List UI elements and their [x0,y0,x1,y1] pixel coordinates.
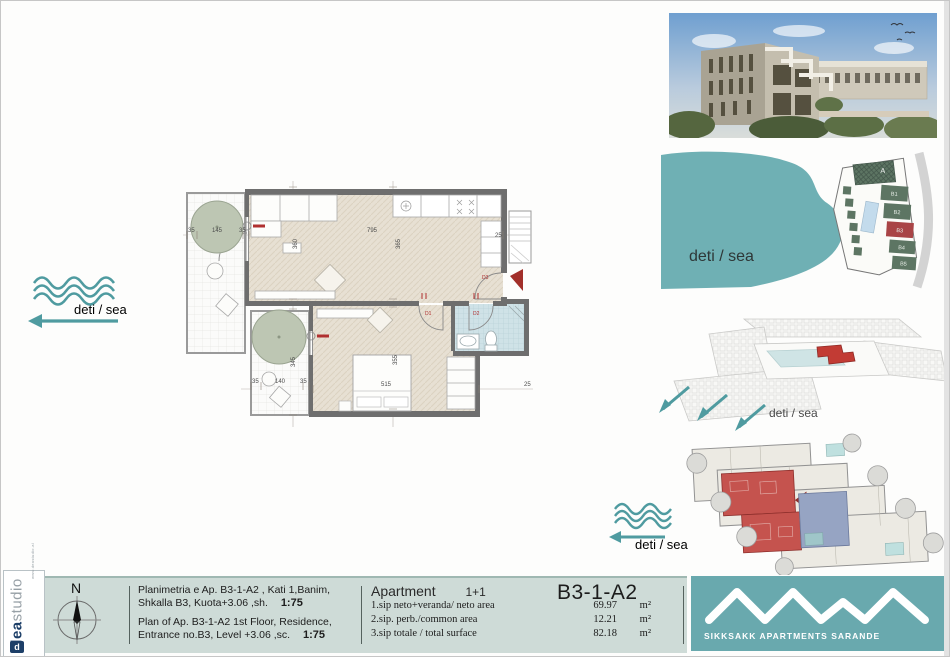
drawing-titles: Planimetria e Ap. B3-1-A2 , Kati 1,Banim… [138,584,356,648]
scale-sq: 1:75 [281,597,303,609]
dim-veranda2-height: 345 [291,356,297,367]
dim-balc1-c: 35 [239,228,246,234]
table-row: 3.sip totale / total surface 82.18 m² [371,627,677,641]
bath-tile-3 [885,542,904,555]
block-b3-label: B3 [896,228,903,234]
site-plan: A B1 B2 B3 B4 B5 [823,151,949,289]
arrow-left-icon [28,314,42,328]
nightstand [339,401,351,411]
door-tag-d1: D1 [425,311,432,317]
deastudio-logo: deastudio www.deastudio.al d [3,570,45,657]
bath-tile-2 [826,443,845,456]
company-name: SIKKSAKK APARTMENTS SARANDE [704,631,880,641]
dim-balc2-c: 35 [300,379,307,385]
block-b2-label: B2 [893,210,900,216]
dim-living-width: 795 [367,228,378,234]
row-label: 1.sip neto+veranda/ neto area [371,599,567,613]
row-label: 2.sip. perb./common area [371,613,567,627]
arrow-left-icon-2 [609,531,621,543]
row-unit: m² [617,627,651,641]
row-unit: m² [617,613,651,627]
building-wing [809,61,927,99]
sea-label-axon: deti / sea [769,406,818,420]
dim-balc1-a: 35 [188,228,195,234]
sea-label-left: deti / sea [74,302,128,317]
sea-shape [661,152,841,289]
dresser [317,309,373,318]
drawing-sheet: D3 D1 D2 [0,0,950,657]
dim-kitchen-side: 25 [495,233,502,239]
unit-code: B3-1-A2 [557,581,638,605]
apartment-label: Apartment [371,583,436,599]
title-en-line1: Plan of Ap. B3-1-A2 1st Floor, Residence… [138,616,332,628]
bath-tile-1 [805,533,824,546]
sea-direction-right: deti / sea [605,499,705,555]
company-logo-block: SIKKSAKK APARTMENTS SARANDE [691,576,947,651]
studio-text: studio [9,578,26,621]
row-value: 82.18 [567,627,617,641]
dim-bedroom-width: 515 [381,382,392,388]
road [917,153,929,287]
deastudio-wordmark: deastudio [9,578,26,648]
table-row: 2.sip. perb./common area 12.21 m² [371,613,677,627]
tv-cabinet [255,291,335,299]
dim-balc2-a: 35 [252,379,259,385]
scale-en: 1:75 [303,629,325,641]
dim-balc2-b: 140 [275,379,286,385]
title-block: N Planimetria e Ap. B3-1-A2 , Kati 1,Ban… [41,576,687,653]
door-tag-d2: D2 [473,311,480,317]
area-table: Apartment 1+1 B3-1-A2 1.sip neto+veranda… [371,583,677,642]
deastudio-icon: d [10,641,24,653]
key-floor-plan [683,429,949,575]
title-sq-line1: Planimetria e Ap. B3-1-A2 , Kati 1,Banim… [138,584,330,596]
row-label: 3.sip totale / total surface [371,627,567,641]
dim-balc1-b: 145 [212,228,223,234]
dim-bedroom-height: 355 [393,354,399,365]
dim-left-height: 360 [293,238,299,249]
sea-label-site: deti / sea [689,248,754,265]
axonometric-view: deti / sea [649,289,949,434]
separator [129,586,130,644]
sea-map: deti / sea [661,149,841,289]
deastudio-url: www.deastudio.al [30,543,35,579]
north-compass-icon [51,594,103,646]
sea-direction-left: deti / sea [26,271,134,333]
zigzag-logo-icon [701,582,937,626]
separator [361,586,362,644]
apartment-type: 1+1 [465,585,485,599]
title-sq-line2: Shkalla B3, Kuota+3.06 ,sh. [138,597,268,609]
block-b4-label: B4 [898,245,905,251]
dim-living-height: 365 [396,238,402,249]
waves-icon-2 [615,504,671,537]
title-en-line2: Entrance no.B3, Level +3.06 ,sc. [138,629,290,641]
wardrobe [447,357,475,409]
block-b5-label: B5 [900,261,907,267]
separator [683,586,684,644]
door-tag-d3: D3 [482,275,489,281]
block-a-label: A [880,168,885,175]
building-render-photo [669,13,937,138]
apartment-floor-plan: D3 D1 D2 [179,179,535,429]
sea-label-right: deti / sea [635,537,689,552]
row-value: 12.21 [567,613,617,627]
entry-stair [509,211,531,263]
dim-bedroom-side: 25 [524,382,531,388]
block-b1-label: B1 [891,191,898,197]
entrance-arrow [510,269,523,291]
building-tower [701,43,831,125]
